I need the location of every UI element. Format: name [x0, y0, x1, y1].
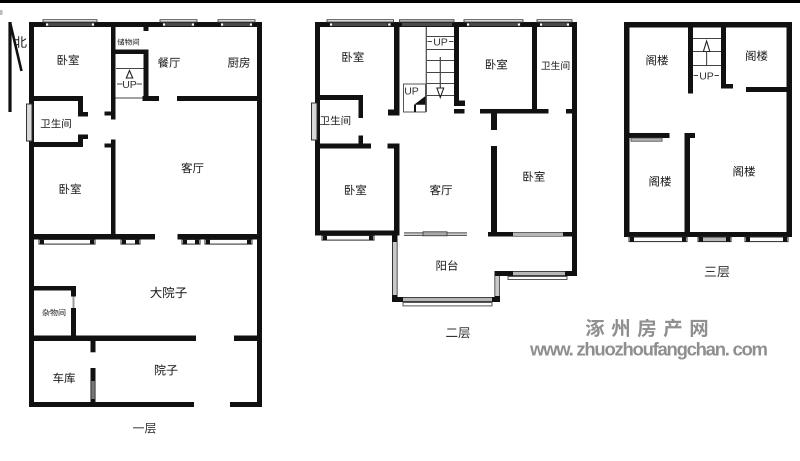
svg-text:UP: UP	[404, 85, 419, 97]
svg-text:www. zhuozhoufangchan. com: www. zhuozhoufangchan. com	[529, 339, 768, 360]
svg-text:UP: UP	[433, 36, 448, 48]
svg-text:UP: UP	[699, 70, 714, 82]
svg-text:UP: UP	[122, 79, 137, 91]
